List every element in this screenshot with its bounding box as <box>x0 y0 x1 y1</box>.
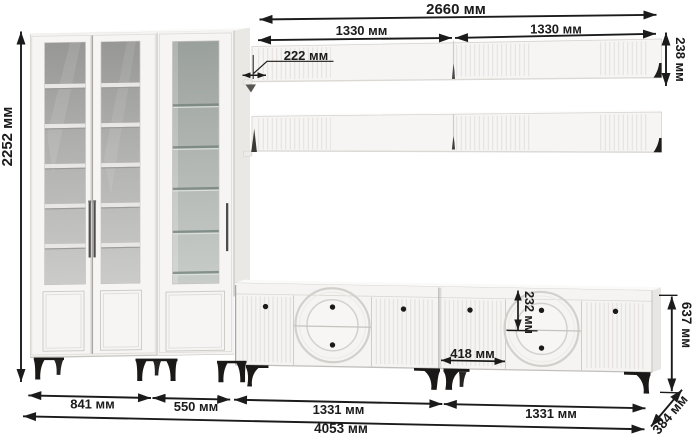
svg-text:1330 мм: 1330 мм <box>336 23 388 38</box>
svg-text:232 мм: 232 мм <box>522 291 536 334</box>
svg-text:384 мм: 384 мм <box>649 392 690 437</box>
svg-text:1331 мм: 1331 мм <box>525 406 577 421</box>
svg-text:4053 мм: 4053 мм <box>314 421 368 436</box>
svg-text:550 мм: 550 мм <box>174 399 219 414</box>
svg-text:1330 мм: 1330 мм <box>530 21 582 36</box>
svg-text:238 мм: 238 мм <box>673 37 688 82</box>
svg-text:2660 мм: 2660 мм <box>426 1 486 18</box>
svg-text:418 мм: 418 мм <box>450 346 495 361</box>
svg-text:637 мм: 637 мм <box>679 302 694 348</box>
svg-text:841 мм: 841 мм <box>70 396 115 411</box>
svg-text:1331 мм: 1331 мм <box>313 402 365 417</box>
svg-text:2252 мм: 2252 мм <box>0 107 16 167</box>
